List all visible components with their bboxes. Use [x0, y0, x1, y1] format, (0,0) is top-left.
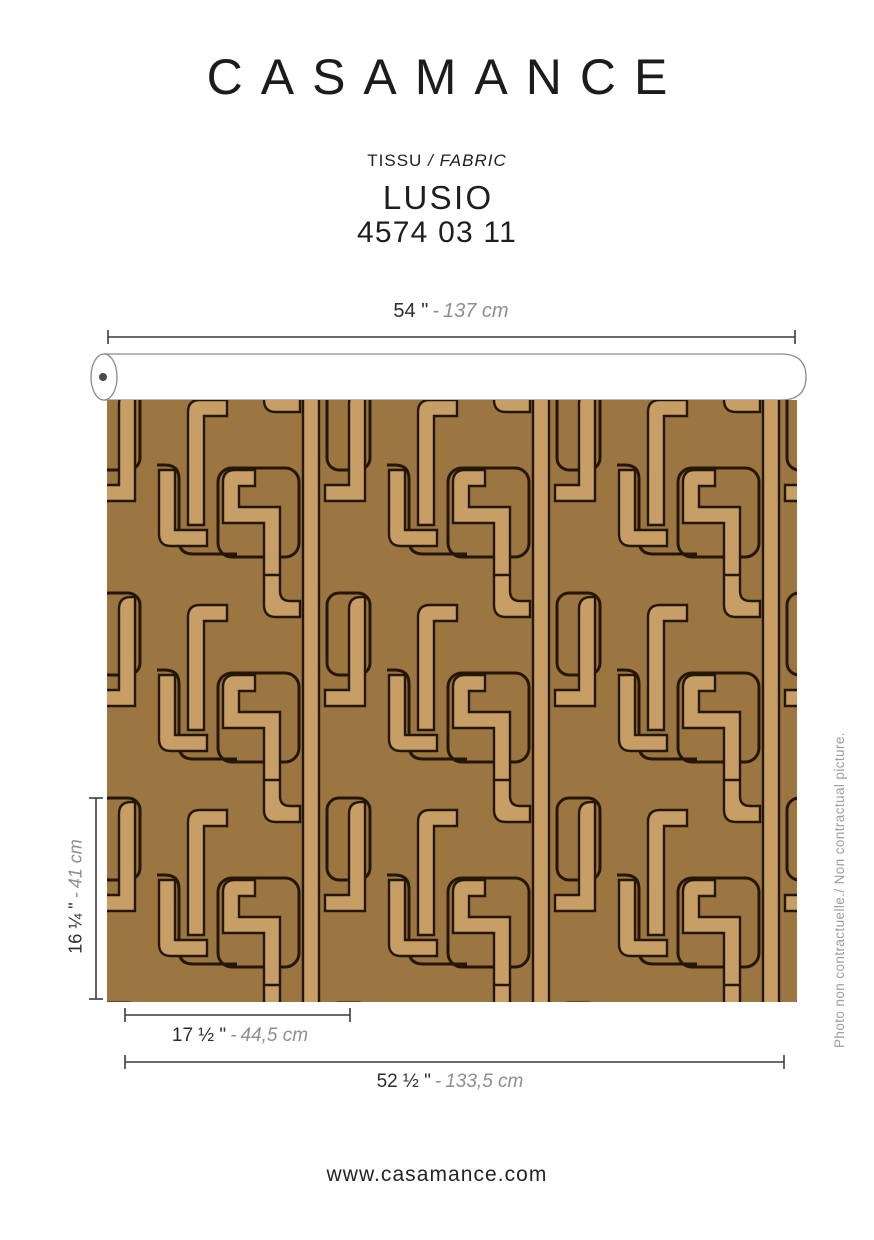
usable-width-dimension-line	[125, 1055, 784, 1069]
pattern-height-imperial: 16 ¼ "	[66, 902, 86, 953]
website-text: www.casamance.com	[0, 1163, 874, 1187]
spec-diagram	[0, 0, 874, 1240]
pattern-height-label: 16 ¼ "-41 cm	[66, 787, 87, 1007]
pattern-height-metric: 41 cm	[66, 839, 86, 888]
usable-width-label: 52 ½ "-133,5 cm	[377, 1071, 524, 1093]
roll-core-dot	[99, 373, 107, 381]
roll-width-metric: 137 cm	[443, 300, 509, 322]
pattern-width-metric: 44,5 cm	[241, 1025, 309, 1046]
pattern-width-label: 17 ½ "-44,5 cm	[172, 1025, 308, 1047]
usable-width-imperial: 52 ½ "	[377, 1071, 431, 1092]
spec-sheet-page: CASAMANCE TISSU / FABRIC LUSIO 4574 03 1…	[0, 0, 874, 1240]
pattern-width-imperial: 17 ½ "	[172, 1025, 226, 1046]
roll-illustration	[91, 354, 806, 400]
pattern-height-dimension-line	[89, 798, 103, 999]
roll-width-imperial: 54 "	[393, 300, 428, 322]
usable-width-metric: 133,5 cm	[445, 1071, 523, 1092]
pattern-width-dimension-line	[125, 1008, 350, 1022]
roll-width-label: 54 "-137 cm	[393, 300, 508, 323]
fabric-swatch	[107, 400, 797, 1002]
disclaimer-note: Photo non contractuelle./ Non contractua…	[832, 700, 858, 1048]
roll-width-dimension-line	[108, 330, 795, 344]
